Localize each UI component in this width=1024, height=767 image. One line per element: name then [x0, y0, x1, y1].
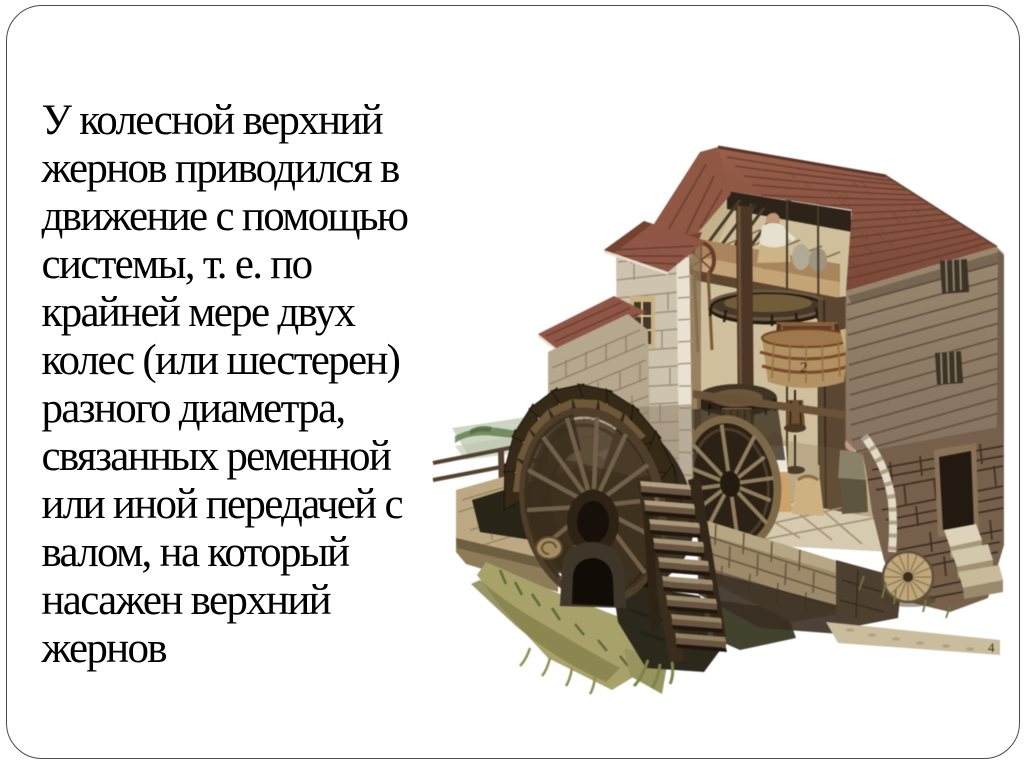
- svg-text:4: 4: [988, 640, 995, 655]
- svg-text:2: 2: [800, 360, 808, 376]
